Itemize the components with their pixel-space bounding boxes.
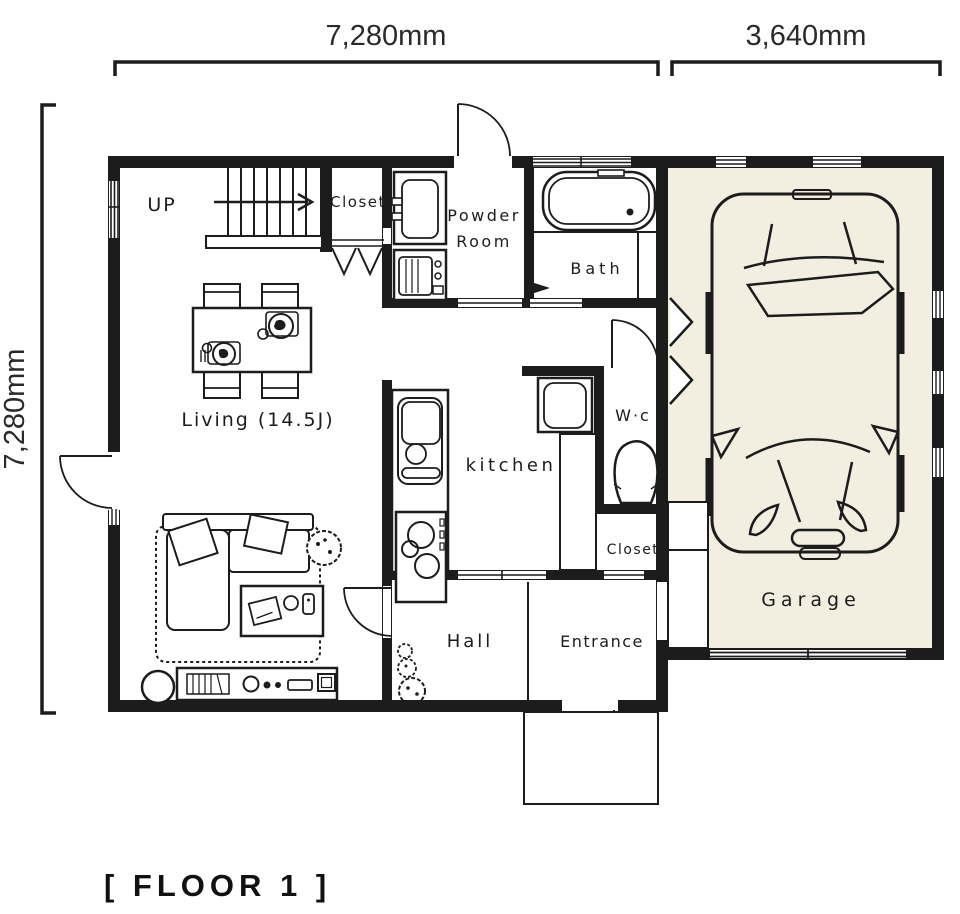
label-entrance: Entrance (560, 632, 644, 651)
dining-table (193, 308, 311, 372)
bathtub-drain (627, 209, 634, 216)
car-body (712, 194, 898, 552)
slider-closet-hall (604, 571, 644, 579)
floor-plan-page: UP Closet Powder Room Bath Living (14.5J… (0, 0, 960, 914)
label-bath: Bath (570, 259, 623, 278)
bathtub (543, 172, 655, 230)
label-garage: Garage (761, 589, 861, 611)
back-door-opening (454, 154, 512, 170)
front-door-opening (562, 700, 618, 712)
entrance-porch (524, 712, 658, 804)
garage-steps (668, 502, 708, 648)
label-wc: W·c (615, 406, 651, 425)
window-garage-right-2 (933, 371, 943, 394)
bathtub-handle (598, 170, 624, 176)
wall-living-hall (382, 380, 392, 710)
label-living: Living (14.5J) (181, 409, 334, 431)
vanity-sink (392, 172, 446, 244)
label-powder-1: Powder (447, 206, 521, 225)
slider-kitchen-hall (458, 571, 546, 579)
window-garage-right-1 (933, 291, 943, 318)
garage-door (710, 650, 906, 658)
left-door-opening (106, 452, 122, 510)
sofa-cushion (244, 514, 288, 553)
stove (396, 512, 446, 602)
washing-machine (394, 250, 446, 300)
plant (307, 531, 341, 565)
slider-bath-entry (530, 299, 582, 307)
window-left-wall (109, 181, 119, 238)
dining-chair (204, 284, 240, 310)
coffee-table (241, 586, 323, 636)
label-closet-middle: Closet (607, 542, 660, 558)
label-closet-upper: Closet (330, 193, 386, 211)
window-bath-top (533, 157, 631, 167)
dimension-top-garage: 3,640mm (746, 20, 867, 52)
dining-chair (204, 370, 240, 398)
powder-room-fixtures (392, 172, 446, 300)
dimension-top-main: 7,280mm (326, 20, 447, 52)
window-garage-top-1 (716, 157, 746, 167)
dining-chair (262, 370, 298, 398)
label-kitchen: kitchen (466, 455, 557, 476)
dining-chair (262, 284, 298, 310)
garage-step-upper (668, 502, 708, 550)
living-hall-door-opening (383, 586, 391, 638)
wall-wc-closet (594, 504, 668, 514)
floor-plan-drawing: UP Closet Powder Room Bath Living (14.5J… (0, 0, 960, 914)
car-illustration (709, 190, 901, 559)
window-garage-top-2 (813, 157, 861, 167)
window-left-small (109, 509, 119, 525)
wall-top-garage (656, 156, 944, 168)
entrance-garage-opening (657, 582, 667, 640)
round-stool (142, 671, 174, 703)
wall-left-house (108, 156, 120, 712)
stairs-landing (206, 236, 322, 248)
dimension-left: 7,280mm (0, 349, 31, 470)
label-hall: Hall (447, 631, 494, 652)
window-garage-right-3 (933, 448, 943, 477)
wall-right-garage (932, 156, 944, 660)
garage-step-lower (668, 550, 708, 648)
wc-fixtures (614, 441, 658, 503)
tv-console (177, 668, 337, 700)
closet-powder-gap (383, 228, 391, 244)
kitchen-partition (560, 434, 596, 570)
slider-powder-entry (458, 299, 522, 307)
label-powder-2: Room (456, 232, 512, 251)
floor-title: [ FLOOR 1 ] (104, 868, 331, 903)
label-up: UP (147, 194, 176, 216)
toilet (615, 441, 658, 503)
wall-corridor-bar (522, 366, 604, 376)
